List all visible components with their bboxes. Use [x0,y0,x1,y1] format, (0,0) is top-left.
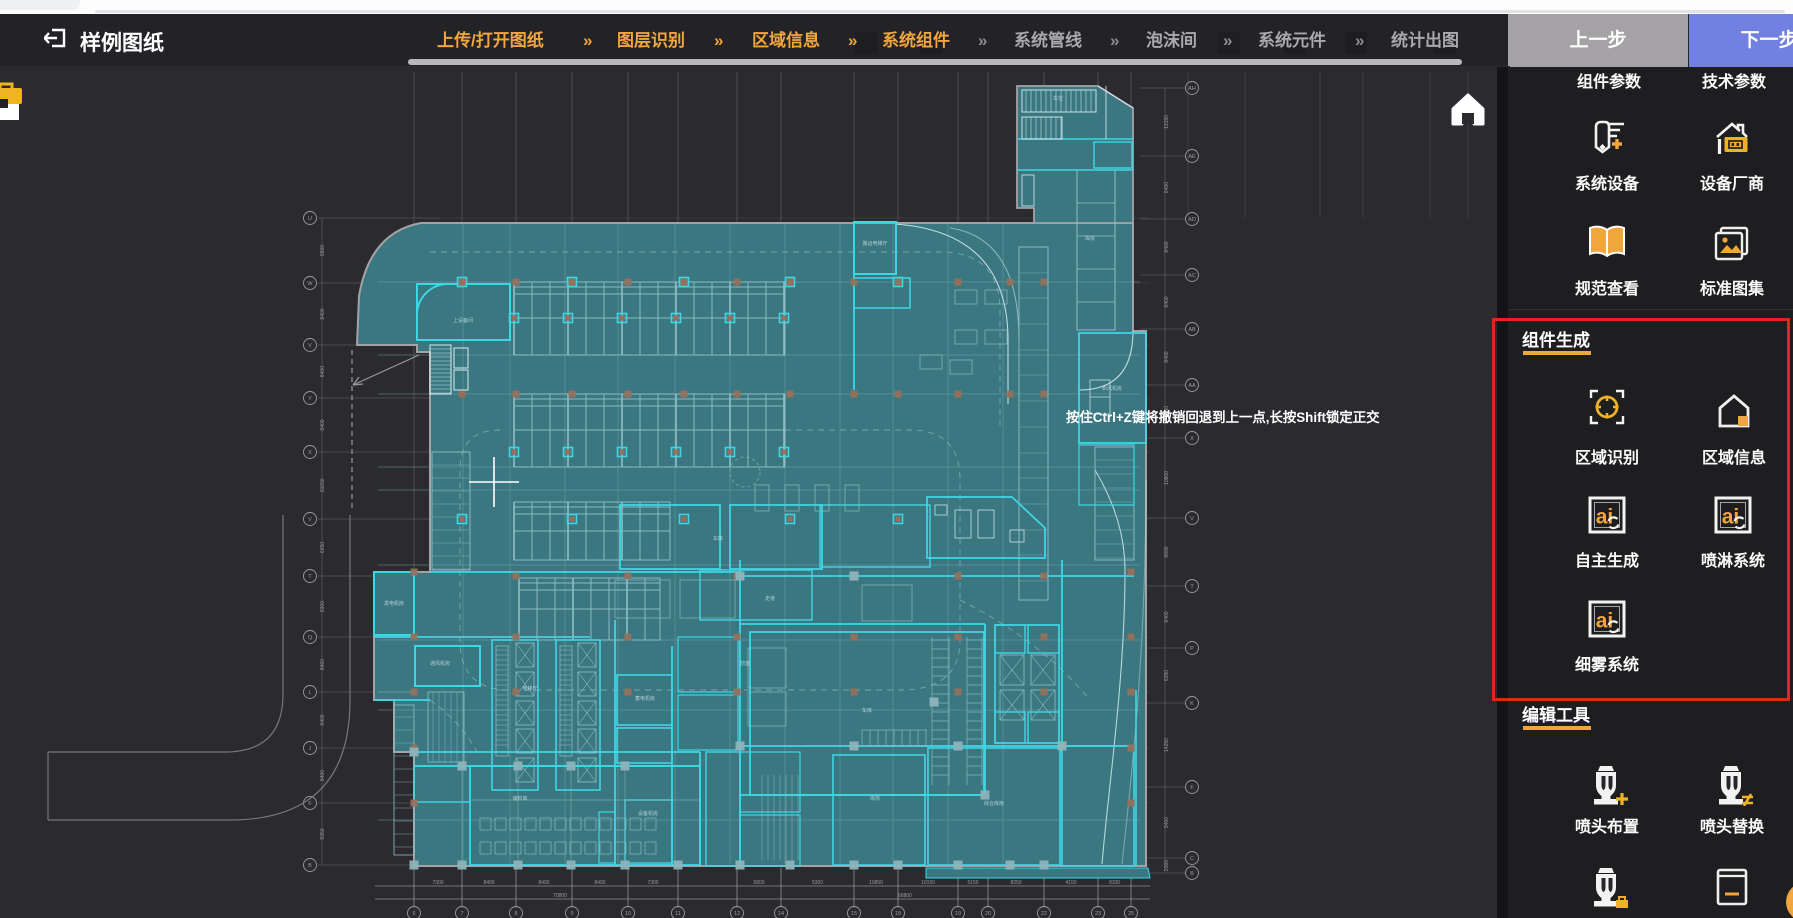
svg-text:新风机房: 新风机房 [1102,385,1122,392]
svg-text:10850: 10850 [869,880,883,886]
svg-text:10: 10 [625,911,631,917]
svg-text:B: B [1190,871,1194,877]
svg-text:8250: 8250 [1010,880,1021,886]
svg-text:5350: 5350 [1164,670,1170,681]
svg-text:8400: 8400 [1164,296,1170,307]
svg-text:20: 20 [985,911,991,917]
svg-text:上设备间: 上设备间 [453,317,473,324]
svg-text:23: 23 [1095,911,1101,917]
svg-text:14250: 14250 [1164,738,1170,752]
svg-text:电梯厅: 电梯厅 [522,685,537,692]
svg-text:C: C [1190,856,1194,862]
svg-text:18: 18 [895,911,901,917]
svg-text:车位: 车位 [1053,95,1063,102]
svg-text:8100: 8100 [1109,880,1120,886]
svg-text:2000: 2000 [1164,860,1170,871]
svg-text:通风机房: 通风机房 [430,660,450,667]
svg-text:走道: 走道 [765,595,775,602]
svg-text:70800: 70800 [553,893,567,899]
svg-text:8400: 8400 [538,880,549,886]
svg-text:AH: AH [1188,86,1196,92]
svg-text:8400: 8400 [1164,351,1170,362]
svg-text:8400: 8400 [320,419,326,430]
svg-text:19: 19 [955,911,961,917]
svg-text:车库: 车库 [862,707,872,714]
svg-text:V: V [1190,516,1194,522]
svg-text:12: 12 [734,911,740,917]
svg-text:AA: AA [1188,383,1196,389]
svg-text:15: 15 [851,911,857,917]
svg-text:5150: 5150 [967,880,978,886]
svg-text:5800: 5800 [753,880,764,886]
svg-text:库房: 库房 [1085,235,1095,242]
svg-text:8400: 8400 [320,366,326,377]
svg-text:10800: 10800 [1164,471,1170,485]
svg-text:13150: 13150 [1164,115,1170,129]
svg-text:AD: AD [1188,217,1196,223]
svg-text:8400: 8400 [320,308,326,319]
svg-text:X: X [308,450,312,456]
svg-text:6: 6 [412,911,415,917]
svg-text:蓄电机房: 蓄电机房 [635,695,655,702]
svg-text:9400: 9400 [1164,817,1170,828]
svg-text:8600: 8600 [1164,546,1170,557]
svg-text:Q: Q [308,635,313,641]
svg-text:L: L [308,690,311,696]
svg-text:J: J [309,746,312,752]
svg-text:8400: 8400 [594,880,605,886]
svg-text:6650: 6650 [320,542,326,553]
svg-text:Y: Y [308,396,312,402]
svg-text:发电机房: 发电机房 [384,600,404,607]
svg-text:5300: 5300 [812,880,823,886]
svg-text:库房: 库房 [870,795,880,802]
svg-text:9350: 9350 [320,828,326,839]
svg-text:8400: 8400 [320,770,326,781]
svg-text:AB: AB [1188,327,1196,333]
svg-text:AC: AC [1188,273,1196,279]
svg-text:X: X [1190,436,1194,442]
svg-text:10200: 10200 [320,478,326,492]
svg-text:U: U [308,216,312,222]
svg-text:7300: 7300 [432,880,443,886]
svg-text:10150: 10150 [921,880,935,886]
svg-text:设备机房: 设备机房 [638,810,658,817]
svg-text:按住Ctrl+Z键将撤销回退到上一点,长按Shift锁定正交: 按住Ctrl+Z键将撤销回退到上一点,长按Shift锁定正交 [1066,409,1380,425]
svg-text:9300: 9300 [320,601,326,612]
svg-text:8400: 8400 [320,659,326,670]
svg-text:8400: 8400 [1164,182,1170,193]
svg-text:K: K [1190,701,1194,707]
svg-text:前室: 前室 [740,660,750,667]
svg-text:8400: 8400 [1164,241,1170,252]
svg-text:9: 9 [570,911,573,917]
svg-text:14: 14 [778,911,784,917]
svg-text:8400: 8400 [483,880,494,886]
svg-text:V: V [308,517,312,523]
svg-text:7300: 7300 [647,880,658,886]
svg-text:车库: 车库 [713,535,723,542]
svg-text:9900: 9900 [320,245,326,256]
svg-text:7: 7 [460,911,463,917]
svg-text:8400: 8400 [320,714,326,725]
svg-text:11: 11 [675,911,681,917]
svg-text:9400: 9400 [1164,611,1170,622]
svg-text:8: 8 [514,911,517,917]
svg-text:4150: 4150 [1065,880,1076,886]
svg-text:25: 25 [1128,911,1134,917]
svg-text:P: P [1190,646,1194,652]
svg-text:W: W [307,281,313,287]
svg-text:搬运电梯厅: 搬运电梯厅 [862,240,887,247]
svg-text:V: V [308,343,312,349]
svg-text:68800: 68800 [898,893,912,899]
svg-text:B: B [308,863,312,869]
svg-text:综合库房: 综合库房 [984,800,1004,807]
svg-text:AE: AE [1188,154,1196,160]
svg-text:22: 22 [1041,911,1047,917]
svg-text:储料库: 储料库 [512,795,527,802]
